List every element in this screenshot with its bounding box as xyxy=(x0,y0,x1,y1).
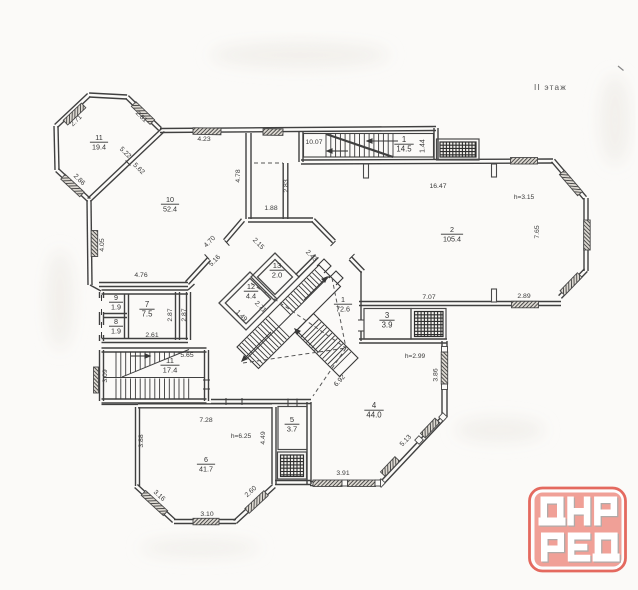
svg-text:1.88: 1.88 xyxy=(264,205,277,212)
svg-text:3: 3 xyxy=(385,311,389,320)
svg-text:14.5: 14.5 xyxy=(396,145,412,154)
svg-text:8: 8 xyxy=(114,317,118,326)
svg-text:1: 1 xyxy=(341,295,345,304)
svg-text:10: 10 xyxy=(166,195,174,204)
svg-text:1.9: 1.9 xyxy=(111,327,121,336)
svg-text:3.88: 3.88 xyxy=(138,434,145,447)
svg-text:2.0: 2.0 xyxy=(272,271,283,280)
svg-text:4.49: 4.49 xyxy=(260,431,267,444)
svg-text:4.23: 4.23 xyxy=(197,136,210,143)
svg-text:3.9: 3.9 xyxy=(382,321,393,330)
svg-text:II этаж: II этаж xyxy=(534,83,567,92)
svg-text:19.4: 19.4 xyxy=(92,143,106,152)
svg-text:52.4: 52.4 xyxy=(163,205,177,214)
svg-text:17.4: 17.4 xyxy=(163,366,178,375)
svg-text:3.7: 3.7 xyxy=(287,425,298,434)
svg-text:2.83: 2.83 xyxy=(283,179,290,192)
svg-text:h=2.99: h=2.99 xyxy=(405,353,426,360)
svg-text:4.05: 4.05 xyxy=(99,238,106,251)
svg-text:4.76: 4.76 xyxy=(134,272,147,279)
svg-text:2.87: 2.87 xyxy=(167,308,174,321)
svg-text:105.4: 105.4 xyxy=(443,235,461,244)
svg-text:1.44: 1.44 xyxy=(420,139,427,153)
svg-text:h=3.15: h=3.15 xyxy=(514,194,535,201)
svg-text:7.28: 7.28 xyxy=(199,417,212,424)
svg-text:7.65: 7.65 xyxy=(534,225,541,238)
svg-text:11: 11 xyxy=(95,133,102,142)
svg-text:4.78: 4.78 xyxy=(235,169,242,182)
svg-text:44.0: 44.0 xyxy=(366,411,382,420)
svg-text:2: 2 xyxy=(450,225,454,234)
svg-text:7: 7 xyxy=(145,300,149,309)
svg-text:3.86: 3.86 xyxy=(433,368,440,381)
svg-text:13: 13 xyxy=(273,261,281,270)
svg-text:1.9: 1.9 xyxy=(111,303,121,312)
svg-text:7.5: 7.5 xyxy=(142,310,154,319)
svg-text:9: 9 xyxy=(114,293,118,302)
svg-text:3.91: 3.91 xyxy=(336,470,349,477)
svg-text:3.09: 3.09 xyxy=(102,369,109,382)
svg-text:41.7: 41.7 xyxy=(199,465,213,474)
svg-text:5.65: 5.65 xyxy=(180,352,193,359)
svg-text:2.87: 2.87 xyxy=(181,308,188,321)
svg-text:2.61: 2.61 xyxy=(145,332,158,339)
svg-text:7.07: 7.07 xyxy=(422,294,435,301)
svg-text:4: 4 xyxy=(372,401,377,410)
svg-text:5: 5 xyxy=(290,415,294,424)
svg-text:4.4: 4.4 xyxy=(246,292,256,301)
svg-text:1: 1 xyxy=(402,135,406,144)
svg-text:16.47: 16.47 xyxy=(429,183,446,190)
svg-text:6: 6 xyxy=(204,455,208,464)
svg-text:h=6.25: h=6.25 xyxy=(231,433,252,440)
svg-text:3.10: 3.10 xyxy=(200,511,213,518)
svg-text:2.89: 2.89 xyxy=(517,293,530,300)
svg-text:11: 11 xyxy=(166,356,174,365)
svg-text:10.07: 10.07 xyxy=(305,139,322,146)
